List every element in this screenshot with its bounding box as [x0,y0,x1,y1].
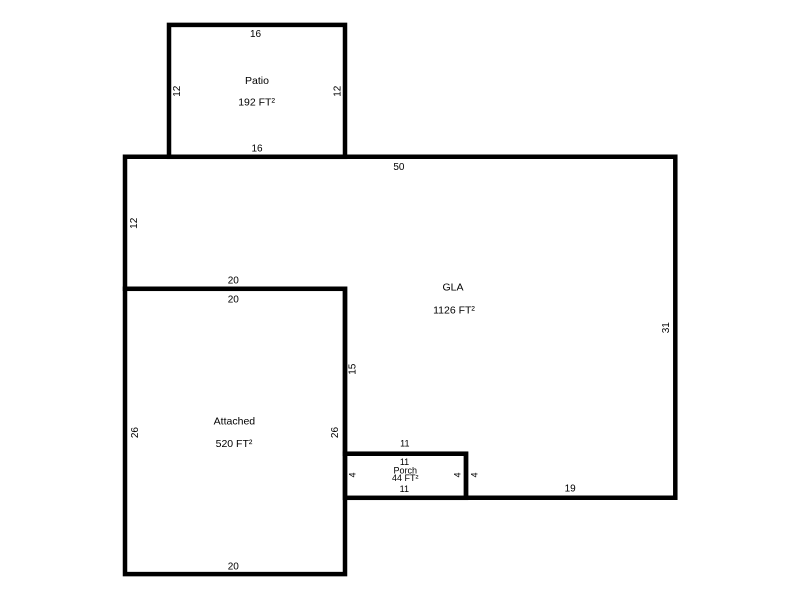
svg-text:19: 19 [565,483,577,494]
svg-text:15: 15 [347,363,358,375]
svg-text:12: 12 [129,217,140,229]
svg-text:4: 4 [452,472,462,477]
svg-text:44 FT²: 44 FT² [392,473,419,483]
svg-text:Attached: Attached [214,416,256,428]
svg-text:20: 20 [228,294,240,305]
svg-text:4: 4 [469,472,479,477]
svg-text:12: 12 [332,85,343,97]
svg-text:520 FT²: 520 FT² [216,438,253,450]
svg-text:16: 16 [250,29,262,40]
svg-text:26: 26 [330,427,341,439]
svg-text:11: 11 [400,439,409,449]
svg-text:192 FT²: 192 FT² [238,96,275,108]
svg-text:16: 16 [251,144,263,155]
svg-text:4: 4 [347,472,357,477]
svg-text:20: 20 [228,561,240,572]
svg-text:GLA: GLA [442,282,463,294]
svg-text:1126 FT²: 1126 FT² [433,304,475,316]
svg-text:31: 31 [661,322,672,334]
svg-text:50: 50 [393,162,405,173]
svg-text:11: 11 [400,484,409,494]
svg-text:20: 20 [228,276,240,287]
svg-text:Patio: Patio [245,75,269,87]
svg-text:12: 12 [172,85,183,97]
svg-text:26: 26 [130,427,141,439]
